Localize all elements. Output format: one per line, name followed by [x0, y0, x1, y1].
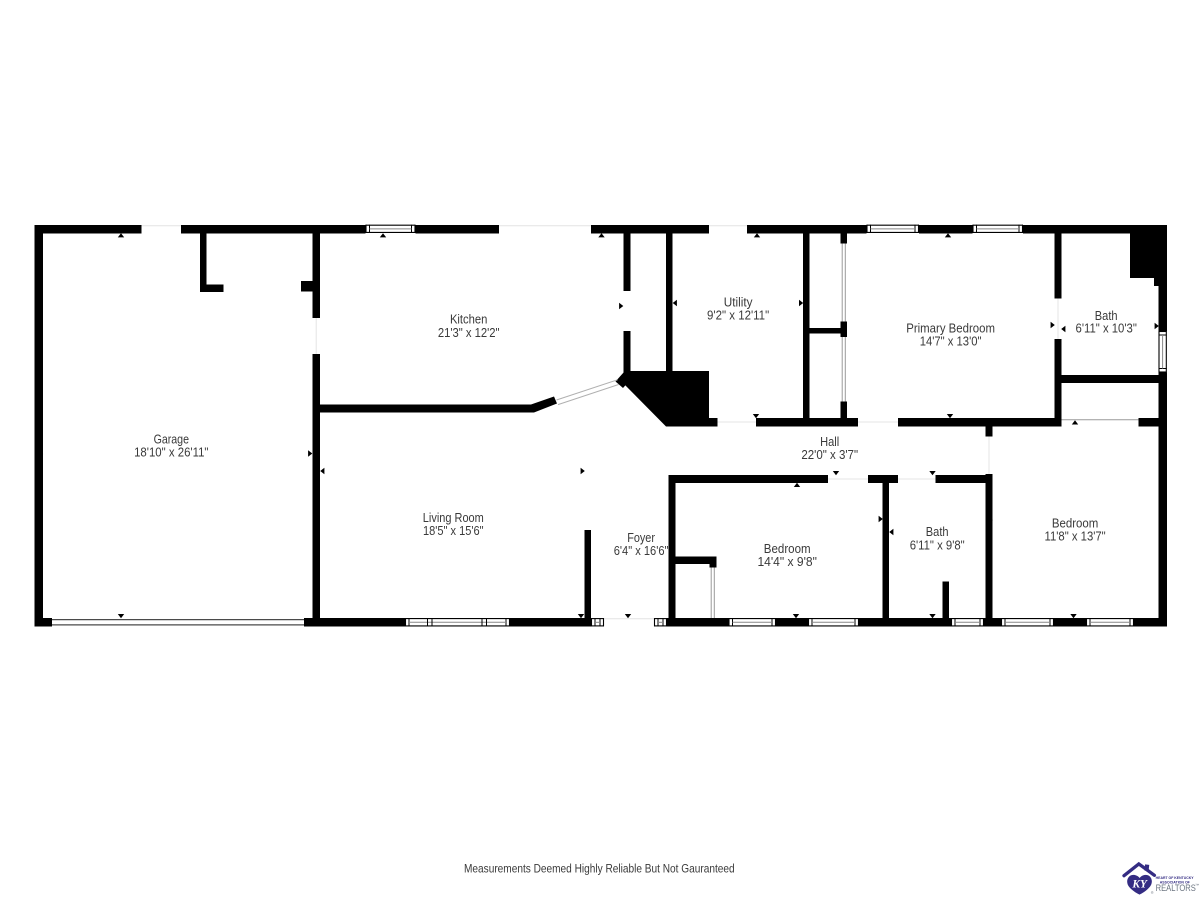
svg-text:9'2" x 12'11": 9'2" x 12'11" [707, 308, 769, 322]
svg-text:21'3" x 12'2": 21'3" x 12'2" [438, 326, 500, 340]
svg-text:11'8" x 13'7": 11'8" x 13'7" [1045, 530, 1106, 544]
svg-text:14'4" x 9'8": 14'4" x 9'8" [757, 555, 817, 569]
svg-text:Living Room: Living Room [423, 511, 484, 525]
svg-text:Bath: Bath [926, 525, 949, 539]
svg-text:Kitchen: Kitchen [450, 312, 488, 326]
svg-text:6'4" x 16'6": 6'4" x 16'6" [614, 544, 669, 558]
svg-text:HEART OF KENTUCKY: HEART OF KENTUCKY [1156, 876, 1195, 880]
svg-text:18'10" x 26'11": 18'10" x 26'11" [134, 446, 208, 460]
svg-text:™: ™ [1195, 883, 1199, 888]
svg-text:Measurements Deemed Highly Rel: Measurements Deemed Highly Reliable But … [464, 862, 735, 876]
svg-text:18'5" x 15'6": 18'5" x 15'6" [423, 524, 484, 538]
svg-text:Garage: Garage [154, 433, 189, 447]
svg-text:Bedroom: Bedroom [764, 542, 811, 556]
svg-text:22'0" x 3'7": 22'0" x 3'7" [801, 448, 858, 462]
svg-text:KY: KY [1131, 878, 1148, 890]
svg-text:6'11" x 10'3": 6'11" x 10'3" [1076, 322, 1137, 336]
svg-text:®: ® [1151, 891, 1154, 895]
svg-text:REALTORS: REALTORS [1156, 883, 1196, 893]
svg-text:6'11" x 9'8": 6'11" x 9'8" [910, 539, 965, 553]
svg-text:14'7" x 13'0": 14'7" x 13'0" [920, 334, 982, 348]
